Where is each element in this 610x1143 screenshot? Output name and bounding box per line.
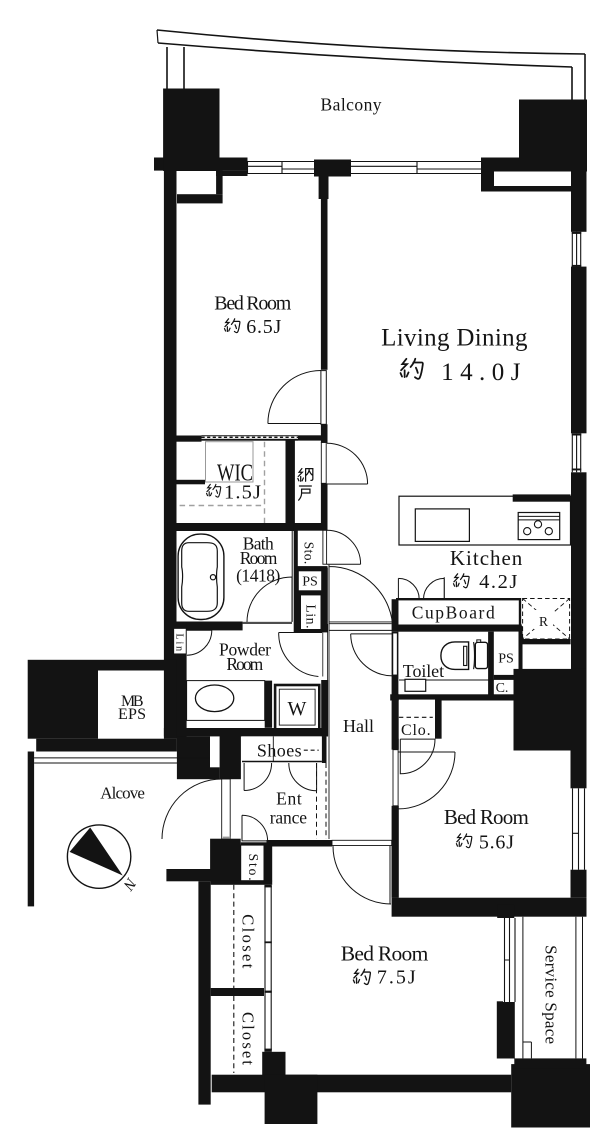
svg-text:C.: C. bbox=[496, 681, 509, 696]
svg-text:7.5J: 7.5J bbox=[377, 967, 416, 989]
svg-text:Balcony: Balcony bbox=[321, 95, 382, 115]
svg-text:Lin.: Lin. bbox=[304, 605, 319, 629]
svg-text:PS: PS bbox=[302, 575, 318, 590]
svg-text:rance: rance bbox=[270, 808, 308, 828]
svg-text:W: W bbox=[288, 698, 307, 720]
svg-text:Ent: Ent bbox=[276, 789, 302, 809]
svg-text:CupBoard: CupBoard bbox=[412, 603, 495, 623]
svg-text:Closet: Closet bbox=[238, 914, 257, 968]
svg-text:6.5J: 6.5J bbox=[246, 316, 281, 338]
svg-text:Closet: Closet bbox=[238, 1012, 257, 1065]
svg-text:Clo.: Clo. bbox=[401, 722, 431, 739]
svg-text:Alcove: Alcove bbox=[100, 783, 145, 802]
svg-text:Bed Room: Bed Room bbox=[214, 293, 291, 315]
svg-text:Hall: Hall bbox=[343, 716, 374, 736]
svg-text:Kitchen: Kitchen bbox=[450, 546, 523, 570]
svg-text:1.5J: 1.5J bbox=[224, 481, 261, 503]
svg-text:Sto.: Sto. bbox=[302, 542, 317, 565]
svg-text:R: R bbox=[539, 614, 548, 629]
svg-text:PS: PS bbox=[498, 652, 514, 667]
svg-text:(1418): (1418) bbox=[236, 566, 280, 586]
svg-text:EPS: EPS bbox=[118, 706, 146, 723]
svg-text:Toilet: Toilet bbox=[403, 661, 444, 681]
svg-text:Bed Room: Bed Room bbox=[341, 942, 429, 966]
svg-text:5.6J: 5.6J bbox=[479, 831, 514, 853]
svg-text:Bed Room: Bed Room bbox=[444, 805, 529, 829]
svg-text:Shoes: Shoes bbox=[257, 740, 302, 760]
svg-text:Living Dining: Living Dining bbox=[381, 324, 528, 351]
svg-text:Room: Room bbox=[226, 654, 263, 674]
svg-text:4.2J: 4.2J bbox=[479, 571, 517, 593]
svg-text:Service Space: Service Space bbox=[542, 945, 561, 1044]
